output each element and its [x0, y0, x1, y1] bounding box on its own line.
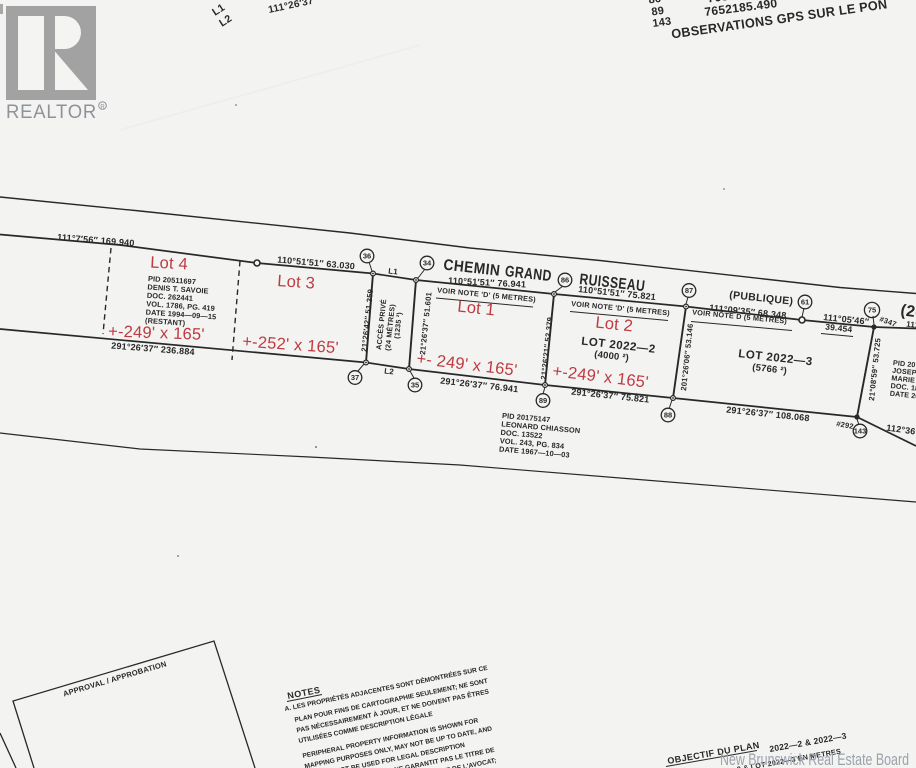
svg-text:+-249' x 165': +-249' x 165' [108, 323, 205, 344]
svg-text:L2: L2 [384, 367, 395, 377]
svg-text:35: 35 [411, 381, 419, 390]
svg-text:143: 143 [854, 427, 867, 436]
svg-text:Lot 4: Lot 4 [150, 254, 189, 274]
svg-text:86: 86 [561, 276, 569, 285]
svg-text:34: 34 [423, 259, 432, 268]
svg-text:88: 88 [664, 411, 672, 420]
svg-text:Lot 3: Lot 3 [277, 272, 316, 293]
svg-text:75: 75 [868, 306, 876, 315]
svg-text:37: 37 [351, 373, 359, 382]
svg-text:61: 61 [801, 298, 809, 307]
svg-text:REALTOR: REALTOR [6, 102, 97, 123]
svg-text:89: 89 [539, 396, 547, 405]
svg-text:87: 87 [685, 286, 693, 295]
svg-text:36: 36 [363, 252, 371, 261]
svg-text:New Brunswick Real Estate Boar: New Brunswick Real Estate Board [720, 750, 909, 768]
svg-text:111°: 111° [906, 320, 916, 331]
svg-text:L1: L1 [388, 267, 399, 277]
svg-text:R: R [100, 104, 105, 110]
